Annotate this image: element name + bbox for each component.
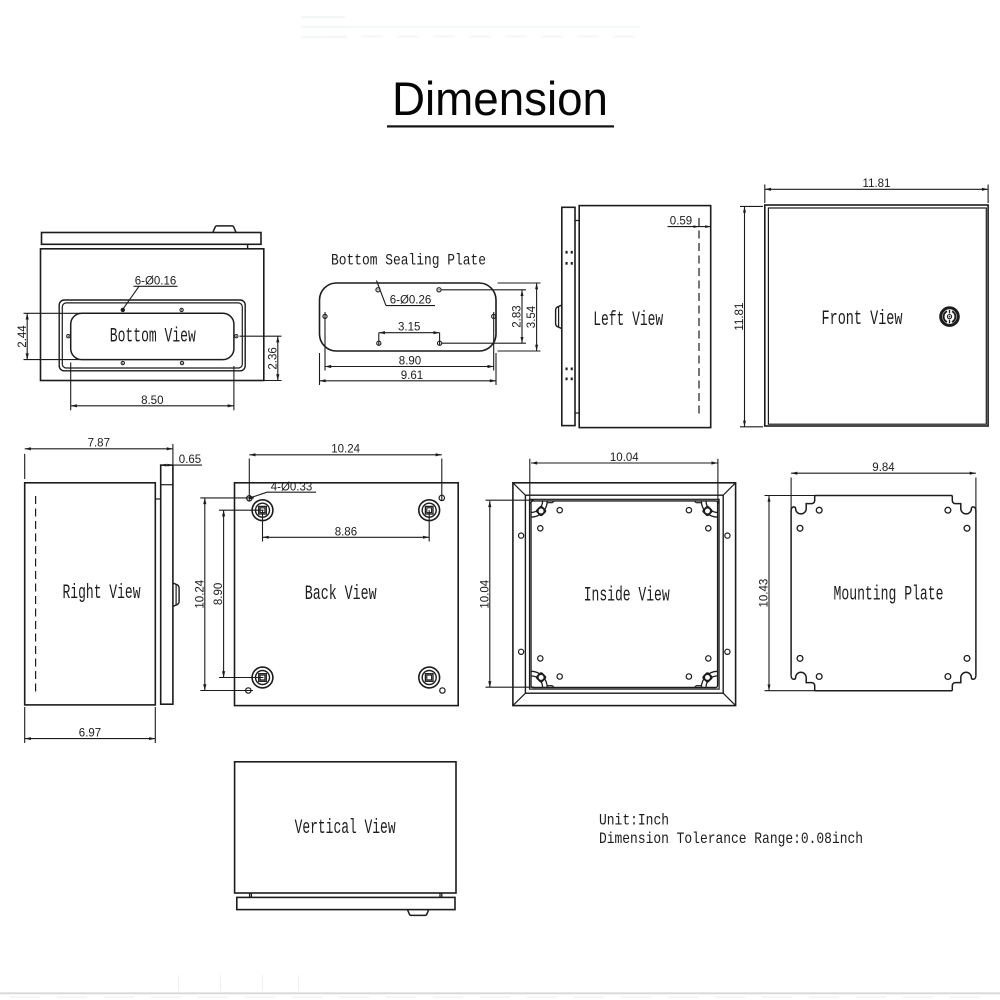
svg-text:Mounting Plate: Mounting Plate [834,584,944,607]
svg-text:10.24: 10.24 [331,444,360,456]
svg-text:8.90: 8.90 [399,356,421,368]
svg-text:0.65: 0.65 [179,454,201,466]
svg-text:9.84: 9.84 [872,462,895,474]
svg-text:2.44: 2.44 [17,325,29,348]
svg-text:6-Ø0.26: 6-Ø0.26 [390,295,432,307]
svg-text:6.97: 6.97 [79,727,101,739]
svg-text:2.36: 2.36 [267,347,279,369]
svg-text:2.83: 2.83 [512,305,524,327]
svg-text:Right View: Right View [63,582,141,605]
svg-text:Left View: Left View [593,309,663,332]
svg-text:3.54: 3.54 [526,305,538,328]
svg-text:Front View: Front View [822,308,903,331]
svg-text:Back View: Back View [305,583,377,606]
svg-text:8.86: 8.86 [335,526,357,538]
svg-text:Unit:Inch: Unit:Inch [599,811,669,829]
svg-text:Dimension: Dimension [392,72,608,125]
svg-text:10.04: 10.04 [479,579,491,608]
svg-text:11.81: 11.81 [734,303,746,331]
svg-text:10.24: 10.24 [194,579,206,608]
svg-text:4-Ø0.33: 4-Ø0.33 [271,481,313,493]
svg-text:6-Ø0.16: 6-Ø0.16 [135,275,177,287]
svg-text:11.81: 11.81 [863,178,891,190]
svg-text:9.61: 9.61 [401,370,423,382]
svg-text:7.87: 7.87 [88,438,110,450]
svg-text:Inside View: Inside View [584,585,670,608]
svg-text:Bottom View: Bottom View [110,326,196,349]
svg-text:0.59: 0.59 [670,216,692,228]
svg-text:Vertical View: Vertical View [295,817,396,840]
svg-text:Dimension Tolerance Range:0.08: Dimension Tolerance Range:0.08inch [599,830,863,848]
svg-text:Bottom Sealing Plate: Bottom Sealing Plate [331,252,486,270]
svg-text:10.43: 10.43 [759,579,771,608]
svg-text:10.04: 10.04 [610,452,639,464]
svg-text:3.15: 3.15 [398,322,420,334]
svg-text:8.50: 8.50 [141,395,163,407]
svg-text:8.90: 8.90 [213,583,225,605]
